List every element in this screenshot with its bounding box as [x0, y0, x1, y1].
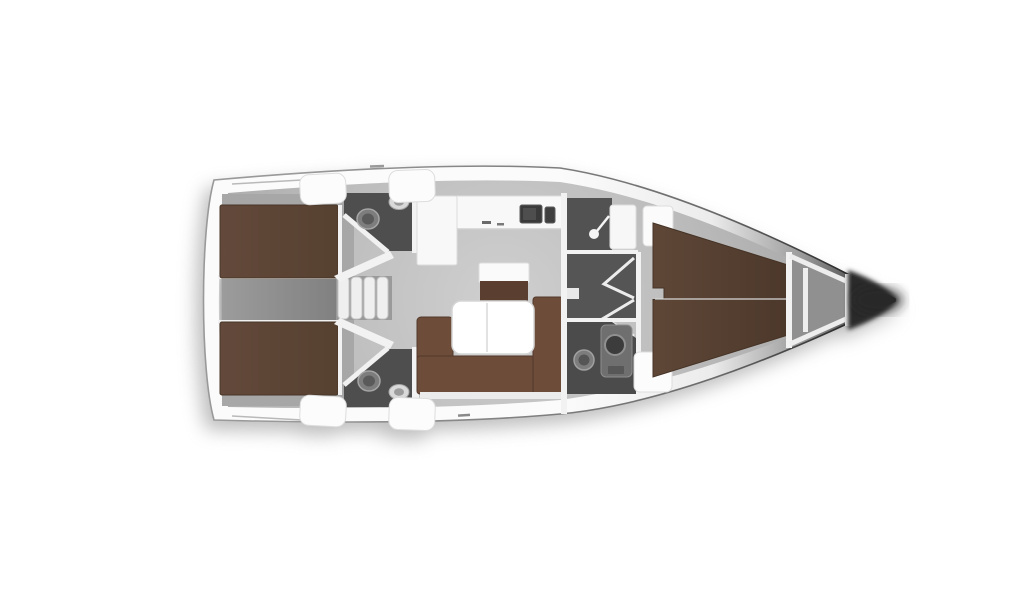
island-cabinet — [479, 263, 529, 301]
island-top — [479, 263, 529, 283]
stove-icon — [545, 207, 555, 223]
door-stop — [566, 288, 579, 299]
counter-handle — [482, 221, 491, 224]
bulkhead-aft — [786, 252, 792, 348]
unit-grate — [608, 366, 624, 374]
deck-cushion — [388, 397, 435, 431]
head-wall-2 — [564, 318, 638, 322]
unit-basin — [605, 335, 625, 355]
engine-corridor-floor — [222, 279, 342, 320]
salon-head-wall — [561, 193, 567, 414]
yacht-floorplan-canvas — [0, 0, 1024, 600]
yacht-floorplan — [0, 0, 1024, 600]
aft-berth-port-wall — [338, 205, 342, 278]
forward-head — [561, 193, 641, 414]
sofa-base — [420, 392, 563, 399]
deck-cushion — [388, 169, 435, 203]
toilet-bowl — [362, 214, 374, 225]
locker-rib — [803, 268, 808, 332]
toilet-bowl — [363, 376, 375, 387]
galley-sink-basin — [523, 208, 536, 220]
counter-handle — [497, 223, 504, 226]
aft-berth-starboard — [220, 322, 338, 395]
head-wall-1 — [564, 250, 638, 254]
hull-group — [204, 165, 905, 431]
washbasin-bowl — [394, 388, 404, 396]
deck-fitting — [370, 165, 384, 168]
deck-cushion — [299, 173, 347, 205]
sofa-right-back — [533, 297, 563, 394]
shower-floor — [566, 198, 612, 252]
salon-table — [452, 301, 534, 354]
anchor-locker — [786, 252, 852, 348]
head-shelf — [610, 205, 636, 249]
aft-berth-starboard-wall — [338, 322, 342, 395]
aft-berth-port — [220, 205, 338, 278]
toilet-bowl — [579, 355, 590, 366]
bow-tip-shadow — [852, 286, 904, 314]
island-front — [480, 281, 528, 301]
deck-cushion — [299, 395, 347, 427]
galley-counter-left — [417, 196, 457, 265]
